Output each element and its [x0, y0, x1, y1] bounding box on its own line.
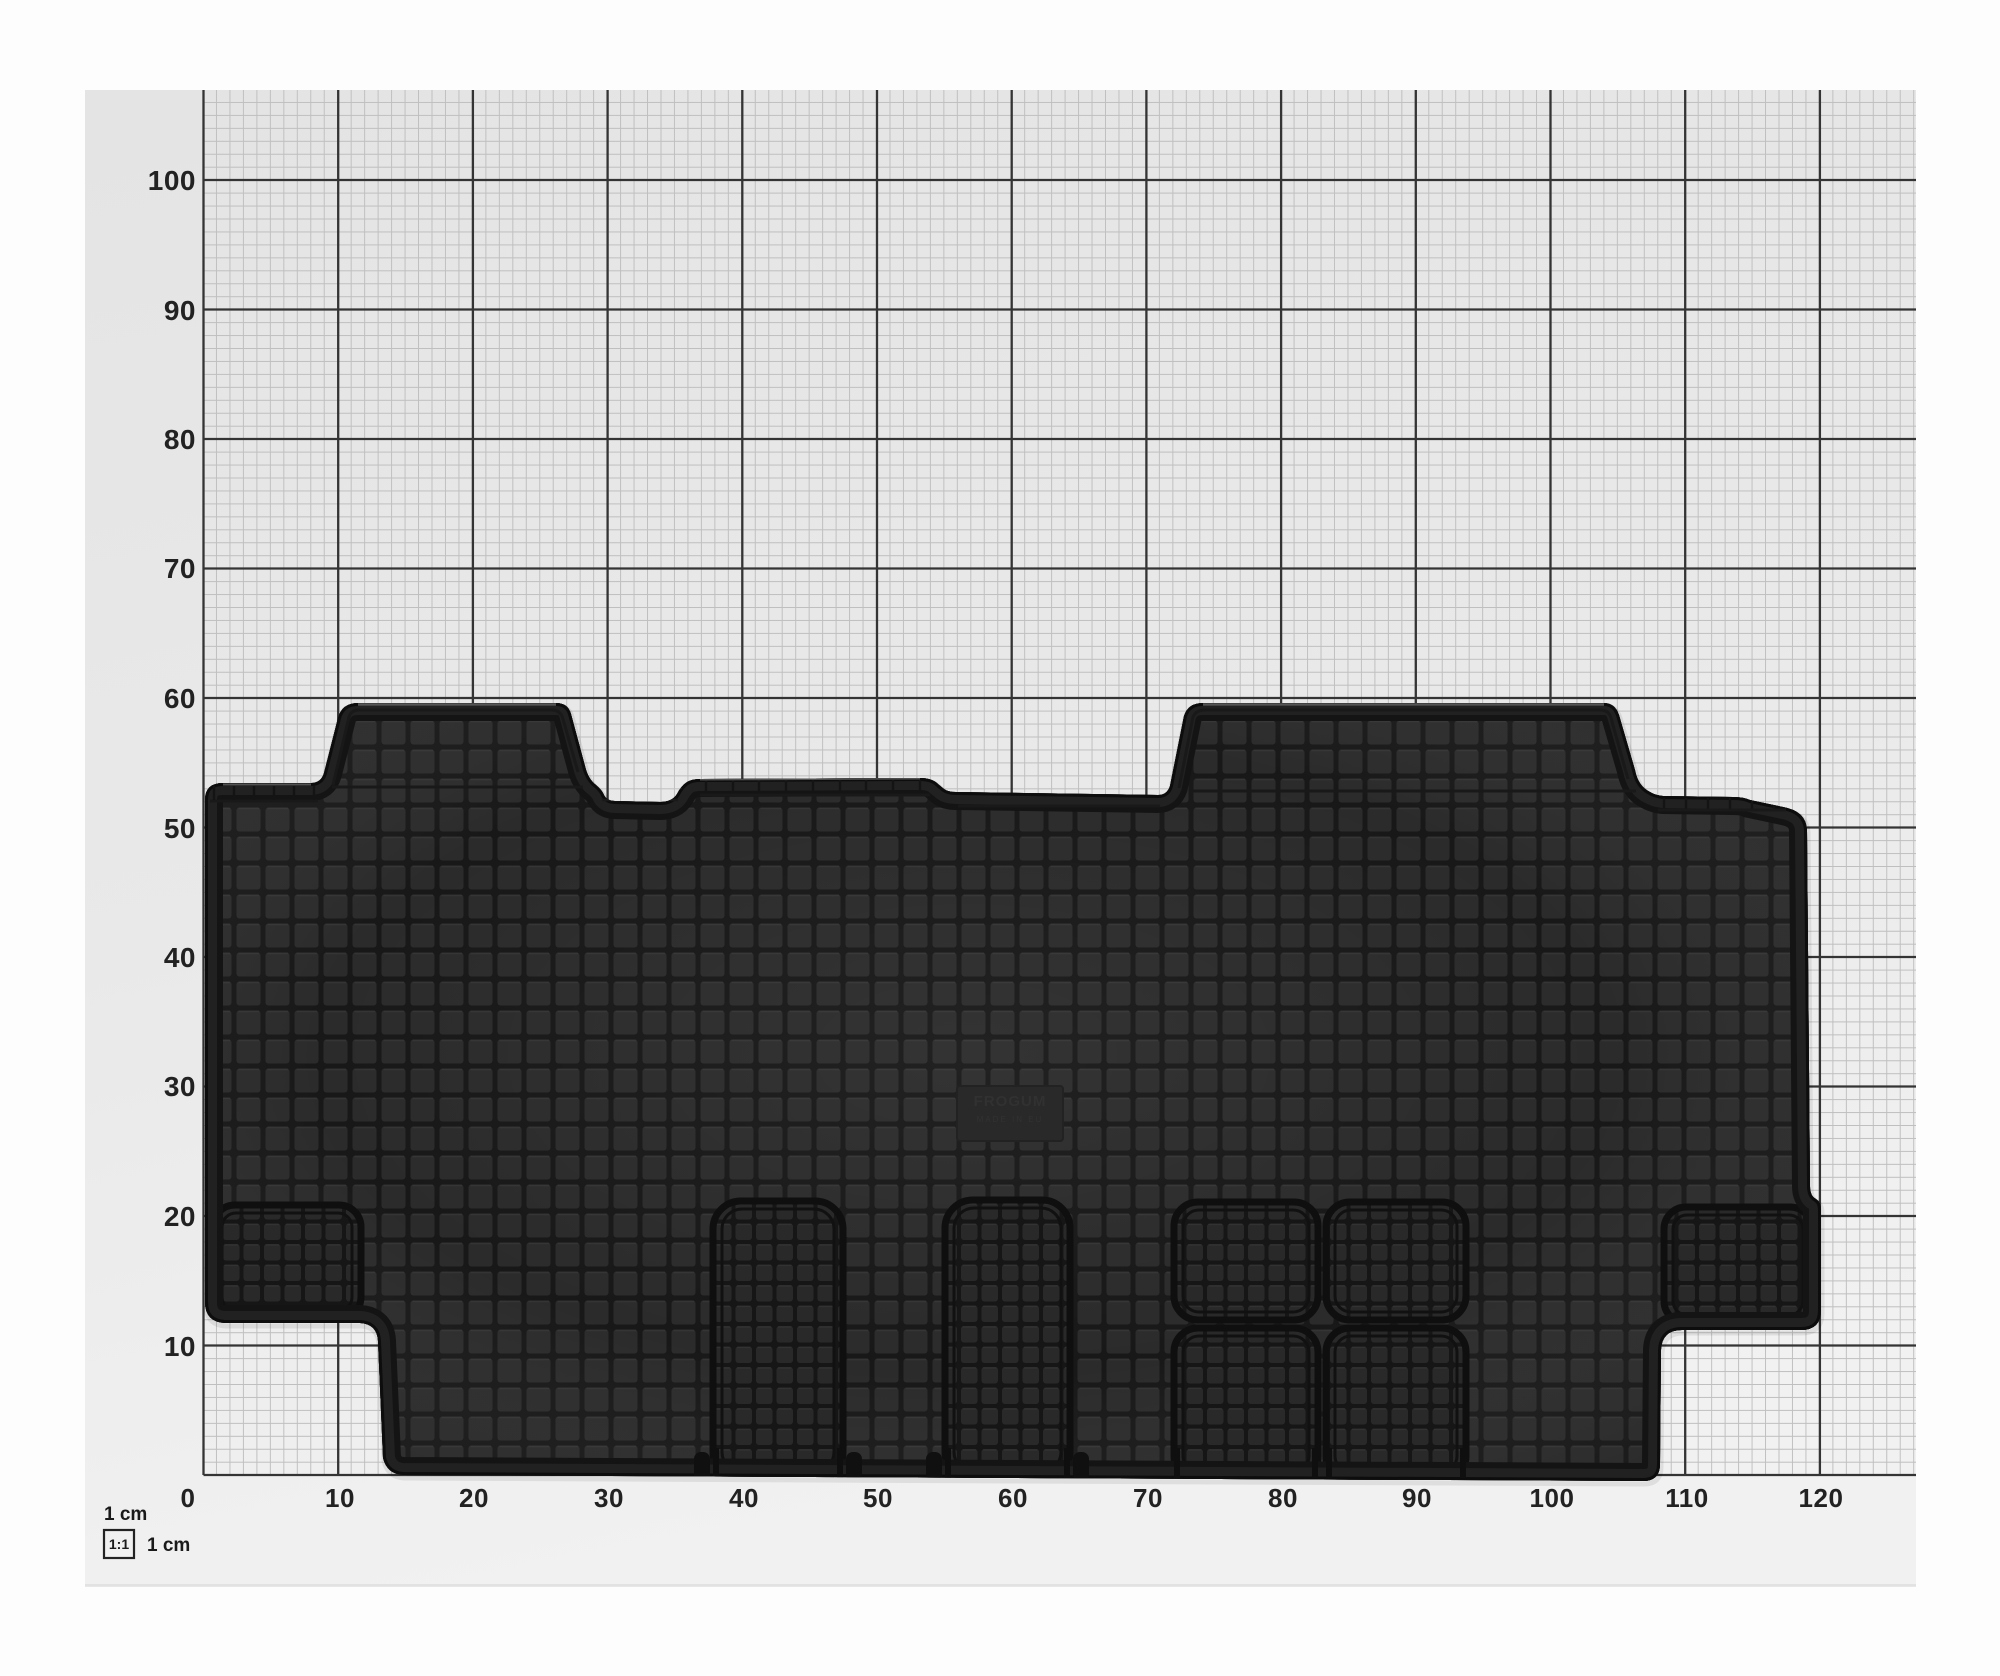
svg-text:80: 80 [1268, 1483, 1298, 1513]
svg-text:20: 20 [459, 1483, 489, 1513]
svg-text:90: 90 [164, 295, 196, 326]
svg-text:110: 110 [1665, 1483, 1708, 1513]
svg-text:70: 70 [164, 553, 196, 584]
svg-text:60: 60 [164, 683, 196, 714]
svg-text:60: 60 [998, 1483, 1028, 1513]
svg-text:1 cm: 1 cm [147, 1535, 190, 1556]
svg-text:20: 20 [164, 1201, 196, 1232]
svg-text:MADE IN EU: MADE IN EU [977, 1115, 1044, 1124]
svg-text:100: 100 [148, 165, 196, 196]
svg-text:30: 30 [594, 1483, 624, 1513]
svg-text:40: 40 [729, 1483, 759, 1513]
svg-text:90: 90 [1402, 1483, 1432, 1513]
svg-text:30: 30 [164, 1071, 196, 1102]
svg-text:0: 0 [181, 1483, 196, 1513]
svg-text:1 cm: 1 cm [104, 1504, 147, 1525]
svg-text:120: 120 [1799, 1483, 1844, 1513]
svg-text:40: 40 [164, 942, 196, 973]
svg-text:10: 10 [164, 1331, 196, 1362]
svg-text:70: 70 [1133, 1483, 1163, 1513]
svg-text:FROGUM: FROGUM [974, 1093, 1047, 1110]
svg-text:1:1: 1:1 [109, 1536, 129, 1552]
svg-text:50: 50 [863, 1483, 893, 1513]
svg-text:50: 50 [164, 813, 196, 844]
svg-text:10: 10 [325, 1483, 355, 1513]
svg-text:100: 100 [1530, 1483, 1575, 1513]
svg-text:80: 80 [164, 424, 196, 455]
